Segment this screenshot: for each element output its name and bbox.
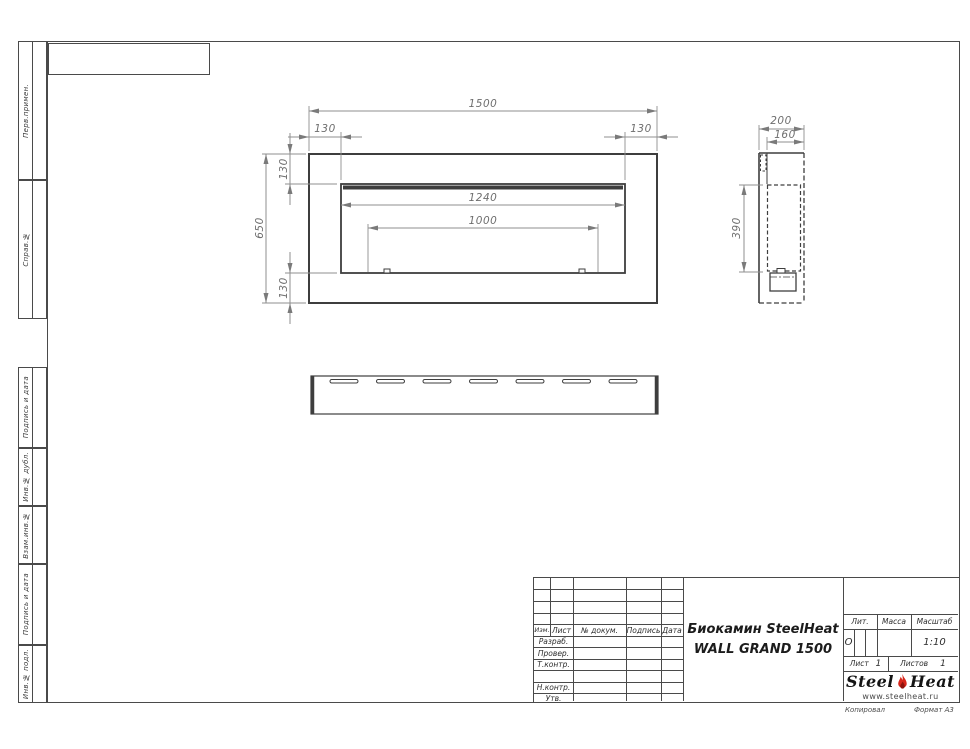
tb-sheets-value: 1 [940, 659, 946, 669]
tb-sheets-cell: Листов 1 [888, 656, 958, 671]
tb-sheets-label: Листов [900, 659, 928, 668]
footnote-copied: Копировал [845, 706, 885, 714]
tb-title-line2: WALL GRAND 1500 [694, 640, 832, 660]
margin-label-podpis-2: Подпись и дата [22, 573, 30, 635]
tb-row-nkontr: Н.контр. [534, 682, 573, 693]
dimension-labels: 1500 130 130 650 130 130 1240 1000 200 1… [254, 98, 796, 299]
tb-row-tkontr: Т.контр. [534, 659, 573, 670]
dim-total-height: 650 [254, 217, 266, 239]
tb-col-date: Дата [661, 624, 683, 636]
burner-box [770, 273, 796, 291]
tb-row-utv: Утв. [534, 693, 573, 703]
drawing-canvas: 1500 130 130 650 130 130 1240 1000 200 1… [0, 0, 970, 577]
tb-mass-label: Масса [877, 614, 911, 629]
burner-box-tab [777, 269, 785, 274]
dimension-lines [266, 111, 804, 324]
brand-site: www.steelheat.ru [862, 692, 938, 701]
tb-scale-label: Масштаб [911, 614, 958, 629]
title-block: Изм. Лист № докум. Подпись Дата Разраб. … [533, 577, 960, 703]
tb-title: Биокамин SteelHeat WALL GRAND 1500 [683, 578, 843, 701]
bottom-view [311, 376, 658, 414]
tb-row-prover: Провер. [534, 647, 573, 659]
dim-flange-right: 130 [630, 123, 652, 135]
drawing-sheet: Перв.примен. Справ.№ Подпись и дата Инв.… [0, 0, 970, 749]
tb-col-sign: Подпись [626, 624, 661, 636]
wall-bracket [761, 155, 767, 171]
brand-heat: Heat [910, 672, 955, 691]
tb-scale-value: 1:10 [911, 629, 958, 656]
tb-sheet-label: Лист [850, 659, 869, 668]
tb-lit-value: О [843, 629, 854, 656]
vent-slots [330, 380, 637, 384]
dim-total-width: 1500 [469, 98, 498, 110]
burner-tab-right [579, 269, 585, 273]
tb-sheet-value: 1 [876, 659, 882, 669]
dim-flange-top: 130 [278, 158, 290, 180]
tb-lit-label: Лит. [843, 614, 877, 629]
flame-icon [896, 674, 909, 691]
dim-burner-width: 1000 [469, 215, 498, 227]
brand-steel: Steel [846, 672, 894, 691]
dim-flange-bottom: 130 [278, 277, 290, 299]
tb-sheet-cell: Лист 1 [843, 656, 888, 671]
side-view [759, 153, 804, 303]
dim-inner-depth: 160 [774, 129, 796, 141]
tb-col-izm: Изм. [534, 624, 550, 636]
dim-flange-left: 130 [314, 123, 336, 135]
burner-tab-left [384, 269, 390, 273]
tb-row-razrab: Разраб. [534, 636, 573, 647]
footnote-format: Формат А3 [914, 706, 954, 714]
tb-title-line1: Биокамин SteelHeat [687, 620, 838, 640]
firebox-hidden-outline [768, 185, 801, 271]
dim-depth: 200 [770, 115, 792, 127]
dim-opening-width: 1240 [469, 192, 498, 204]
tb-col-doc: № докум. [573, 624, 626, 636]
margin-label-inv-podl: Инв.№ подл. [22, 649, 30, 699]
margin-box-inv-podl: Инв.№ подл. [18, 645, 47, 703]
dim-opening-height: 390 [731, 217, 743, 239]
tb-col-list: Лист [550, 624, 573, 636]
brand-logo: Steel Heat www.steelheat.ru [843, 671, 958, 701]
